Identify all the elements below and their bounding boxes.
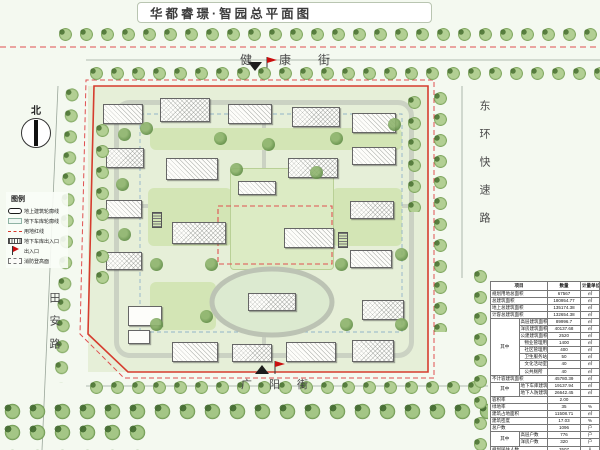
legend-item-label: 地上建筑轮廓线	[24, 208, 59, 215]
table-label-cell: 高层建筑面积	[519, 318, 548, 325]
table-label-cell: 不计容建筑面积	[491, 375, 548, 382]
table-value-cell: 35	[548, 404, 581, 411]
building-block	[228, 104, 272, 124]
table-label-cell: 物业管理用房	[519, 340, 548, 347]
table-row: 规划居住人数3507人	[491, 446, 600, 450]
table-value-cell: 26642.45	[548, 389, 581, 396]
tree-icon	[395, 318, 408, 331]
legend-item-label: 地下车库出入口	[24, 238, 59, 245]
table-unit-cell: ㎡	[581, 411, 600, 418]
building-block	[166, 158, 218, 180]
table-value-cell: 776	[548, 432, 581, 439]
table-label-cell: 地上总建筑面积	[491, 304, 548, 311]
legend-item: 地上建筑轮廓线	[7, 206, 67, 216]
table-value-cell: 1400	[548, 340, 581, 347]
building-block	[362, 300, 404, 320]
table-unit-cell: ㎡	[581, 318, 600, 325]
building-block	[238, 181, 276, 195]
table-value-cell: 89996.7	[548, 318, 581, 325]
legend-item-label: 用地红线	[24, 228, 44, 235]
drawing-title: 华都睿璟·智园总平面图	[150, 3, 312, 22]
tree-icon	[330, 132, 343, 145]
tree-icon	[335, 258, 348, 271]
table-unit-cell: ㎡	[581, 304, 600, 311]
table-unit-cell: ㎡	[581, 382, 600, 389]
building-block	[232, 344, 272, 362]
table-label-cell: 洋房建筑面积	[519, 325, 548, 332]
tree-icon	[395, 248, 408, 261]
tree-icon	[388, 118, 401, 131]
table-row: 其中高层建筑面积89996.7㎡	[491, 318, 600, 325]
tree-icon	[230, 163, 243, 176]
legend-item-label: 出入口	[24, 248, 39, 255]
table-unit-cell: ㎡	[581, 340, 600, 347]
table-label-cell: 文化活动室	[519, 361, 548, 368]
table-value-cell: 135174.38	[548, 304, 581, 311]
table-unit-cell: 人	[581, 446, 600, 450]
table-unit-cell: 户	[581, 425, 600, 432]
table-group-cell: 其中	[491, 318, 520, 375]
building-block	[352, 147, 396, 165]
building-block	[350, 250, 392, 268]
tree-icon	[310, 166, 323, 179]
building-outline-icon	[8, 208, 22, 214]
street-label-right: 东环快速路	[476, 100, 492, 240]
tree-icon	[214, 132, 227, 145]
street-label-bottom: 广阳街	[241, 376, 325, 392]
table-row: 绿地率35%	[491, 404, 600, 411]
legend-item: 地下车库轮廓线	[7, 216, 67, 226]
table-unit-cell: ㎡	[581, 290, 600, 297]
table-value-cell: 180954.77	[548, 297, 581, 304]
table-row: 总户数1096户	[491, 425, 600, 432]
table-row: 建筑密度17.03%	[491, 418, 600, 425]
table-row: 其中地下车库建筑面积19137.94㎡	[491, 382, 600, 389]
table-label-cell: 容积率	[491, 396, 548, 403]
fire-lane-icon	[8, 258, 22, 264]
legend-item-label: 地下车库轮廓线	[24, 218, 59, 225]
street-tree-row	[430, 88, 451, 332]
table-label-cell: 总户数	[491, 425, 548, 432]
table-unit-cell	[581, 396, 600, 403]
legend-item: 地下车库出入口	[7, 236, 67, 246]
building-block	[292, 107, 340, 127]
street-tree-row	[470, 266, 491, 450]
drawing-title-box: 华都睿璟·智园总平面图	[137, 2, 432, 23]
north-arrow-icon	[21, 118, 51, 148]
table-unit-cell: ㎡	[581, 325, 600, 332]
table-value-cell: 2.00	[548, 396, 581, 403]
table-label-cell: 社区管理用房	[519, 347, 548, 354]
street-tree-row	[404, 92, 425, 212]
table-value-cell: 40	[548, 368, 581, 375]
table-row: 地上总建筑面积135174.38㎡	[491, 304, 600, 311]
table-row: 总建筑面积180954.77㎡	[491, 297, 600, 304]
building-block	[286, 342, 336, 362]
table-label-cell: 绿地率	[491, 404, 548, 411]
table-unit-cell: ㎡	[581, 333, 600, 340]
table-value-cell: 45780.39	[548, 375, 581, 382]
table-row: 其中高层户数776户	[491, 432, 600, 439]
building-block	[248, 293, 296, 311]
table-row: 建筑占地面积11508.71㎡	[491, 411, 600, 418]
table-label-cell: 计容总建筑面积	[491, 311, 548, 318]
legend-item: 消防登高面	[7, 256, 67, 266]
table-label-cell: 总建筑面积	[491, 297, 548, 304]
table-value-cell: 11508.71	[548, 411, 581, 418]
table-label-cell: 规划居住人数	[491, 446, 548, 450]
entrance-flag-icon	[8, 248, 22, 254]
tree-icon	[116, 178, 129, 191]
table-unit-cell: 户	[581, 439, 600, 446]
table-header-cell: 数量	[548, 282, 581, 291]
table-unit-cell: ㎡	[581, 361, 600, 368]
tree-icon	[150, 258, 163, 271]
street-label-top: 健康街	[240, 51, 357, 68]
street-tree-row	[55, 24, 600, 45]
table-label-cell: 洋房户数	[519, 439, 548, 446]
table-value-cell: 1096	[548, 425, 581, 432]
table-unit-cell: ㎡	[581, 347, 600, 354]
building-block	[172, 222, 226, 244]
table-unit-cell: ㎡	[581, 311, 600, 318]
tree-icon	[200, 310, 213, 323]
building-block	[172, 342, 218, 362]
table-value-cell: 19137.94	[548, 382, 581, 389]
tree-icon	[118, 128, 131, 141]
street-tree-row	[0, 420, 152, 450]
tree-icon	[340, 318, 353, 331]
building-block	[350, 201, 394, 219]
table-value-cell: 132654.38	[548, 311, 581, 318]
north-label: 北	[16, 102, 56, 117]
tree-icon	[118, 228, 131, 241]
garage-ramp-icon	[8, 238, 22, 244]
legend-item-label: 消防登高面	[24, 258, 49, 265]
table-label-cell: 公共厕所	[519, 368, 548, 375]
table-label-cell: 高层户数	[519, 432, 548, 439]
legend-item: 出入口	[7, 246, 67, 256]
garage-outline-icon	[8, 218, 22, 224]
table-label-cell: 建筑占地面积	[491, 411, 548, 418]
table-value-cell: 67567	[548, 290, 581, 297]
indicator-table: 项目数量计量单位规划用地总面积67567㎡总建筑面积180954.77㎡地上总建…	[490, 281, 600, 450]
tree-icon	[205, 258, 218, 271]
table-unit-cell: ㎡	[581, 375, 600, 382]
street-label-left: 田安路	[46, 292, 62, 361]
table-unit-cell: ㎡	[581, 297, 600, 304]
table-value-cell: 400	[548, 347, 581, 354]
table-header-cell: 计量单位	[581, 282, 600, 291]
table-unit-cell: ㎡	[581, 368, 600, 375]
table-unit-cell: %	[581, 404, 600, 411]
table-label-cell: 公建建筑面积	[519, 333, 548, 340]
building-block	[352, 340, 394, 362]
tree-icon	[262, 138, 275, 151]
legend-items: 地上建筑轮廓线地下车库轮廓线用地红线地下车库出入口出入口消防登高面	[7, 206, 67, 266]
table-value-cell: 40137.68	[548, 325, 581, 332]
table-group-cell: 其中	[491, 432, 520, 446]
table-value-cell: 2520	[548, 333, 581, 340]
tree-icon	[150, 318, 163, 331]
table-label-cell: 地下车库建筑面积	[519, 382, 548, 389]
north-arrow: 北	[16, 102, 56, 148]
legend-item: 用地红线	[7, 226, 67, 236]
legend: 图例 地上建筑轮廓线地下车库轮廓线用地红线地下车库出入口出入口消防登高面	[6, 192, 68, 268]
building-block	[128, 330, 150, 344]
table-header-row: 项目数量计量单位	[491, 282, 600, 291]
table-row: 规划用地总面积67567㎡	[491, 290, 600, 297]
street-tree-row	[92, 120, 112, 290]
table-header-cell: 项目	[491, 282, 548, 291]
table-unit-cell: ㎡	[581, 354, 600, 361]
table-value-cell: 3507	[548, 446, 581, 450]
site-plan-drawing: 华都睿璟·智园总平面图 健康街 广阳街 田安路 东环快速路 北 图例 地上建筑轮…	[0, 0, 600, 450]
tree-icon	[140, 122, 153, 135]
table-row: 计容总建筑面积132654.38㎡	[491, 311, 600, 318]
table-label-cell: 地下人防建筑面积	[519, 389, 548, 396]
red-line-icon	[8, 231, 22, 232]
building-block	[284, 228, 334, 248]
garage-ramp	[152, 212, 162, 228]
table-unit-cell: %	[581, 418, 600, 425]
building-block	[160, 98, 210, 122]
table-value-cell: 17.03	[548, 418, 581, 425]
table-row: 容积率2.00	[491, 396, 600, 403]
garage-ramp	[338, 232, 348, 248]
table-label-cell: 建筑密度	[491, 418, 548, 425]
table-group-cell: 其中	[491, 382, 520, 396]
table-unit-cell: ㎡	[581, 389, 600, 396]
table-value-cell: 40	[548, 361, 581, 368]
table-row: 不计容建筑面积45780.39㎡	[491, 375, 600, 382]
table-label-cell: 卫生服务站	[519, 354, 548, 361]
legend-title: 图例	[11, 194, 67, 204]
table-unit-cell: 户	[581, 432, 600, 439]
table-value-cell: 50	[548, 354, 581, 361]
table-value-cell: 320	[548, 439, 581, 446]
table-label-cell: 规划用地总面积	[491, 290, 548, 297]
